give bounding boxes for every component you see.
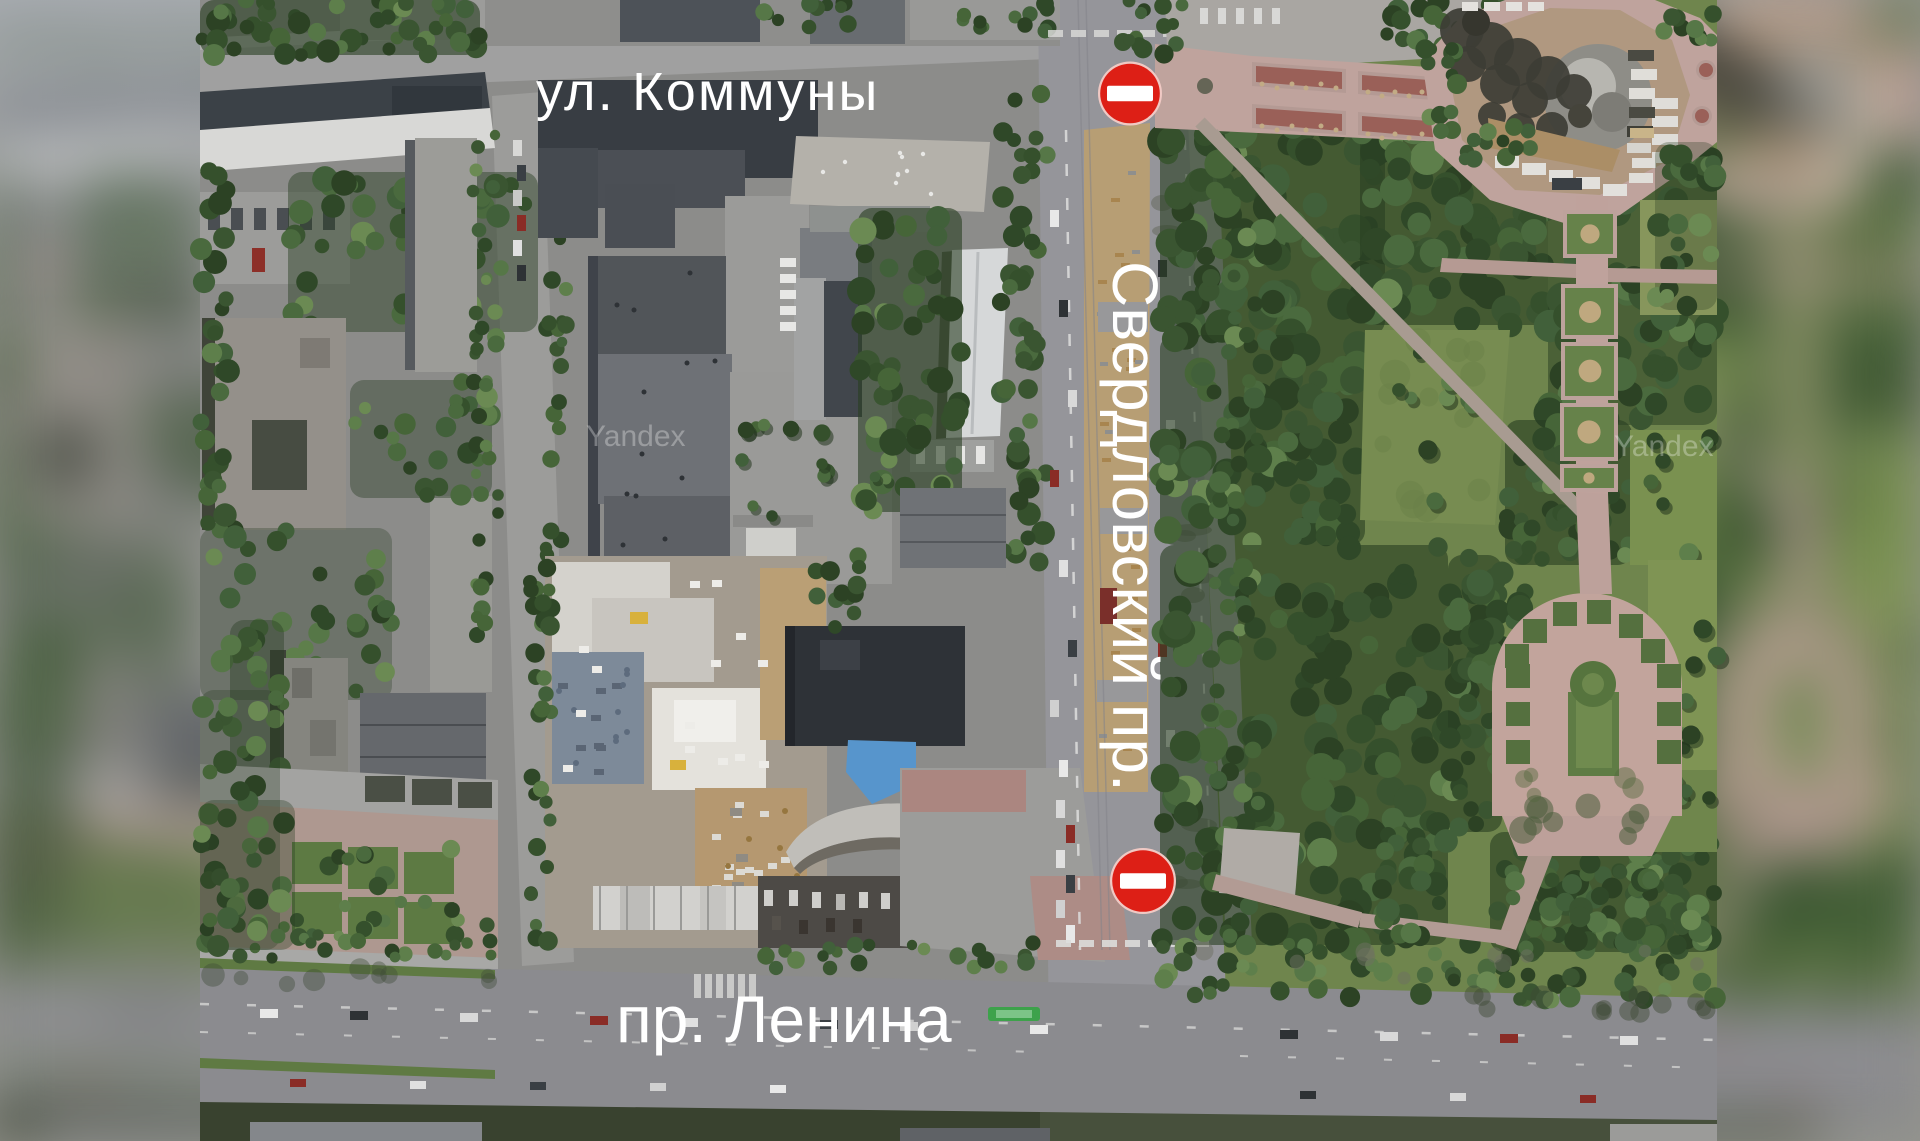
svg-text:пр. Ленина: пр. Ленина [616, 982, 952, 1056]
svg-text:ул. Коммуны: ул. Коммуны [536, 62, 880, 122]
svg-text:Свердловский пр.: Свердловский пр. [1099, 261, 1171, 792]
